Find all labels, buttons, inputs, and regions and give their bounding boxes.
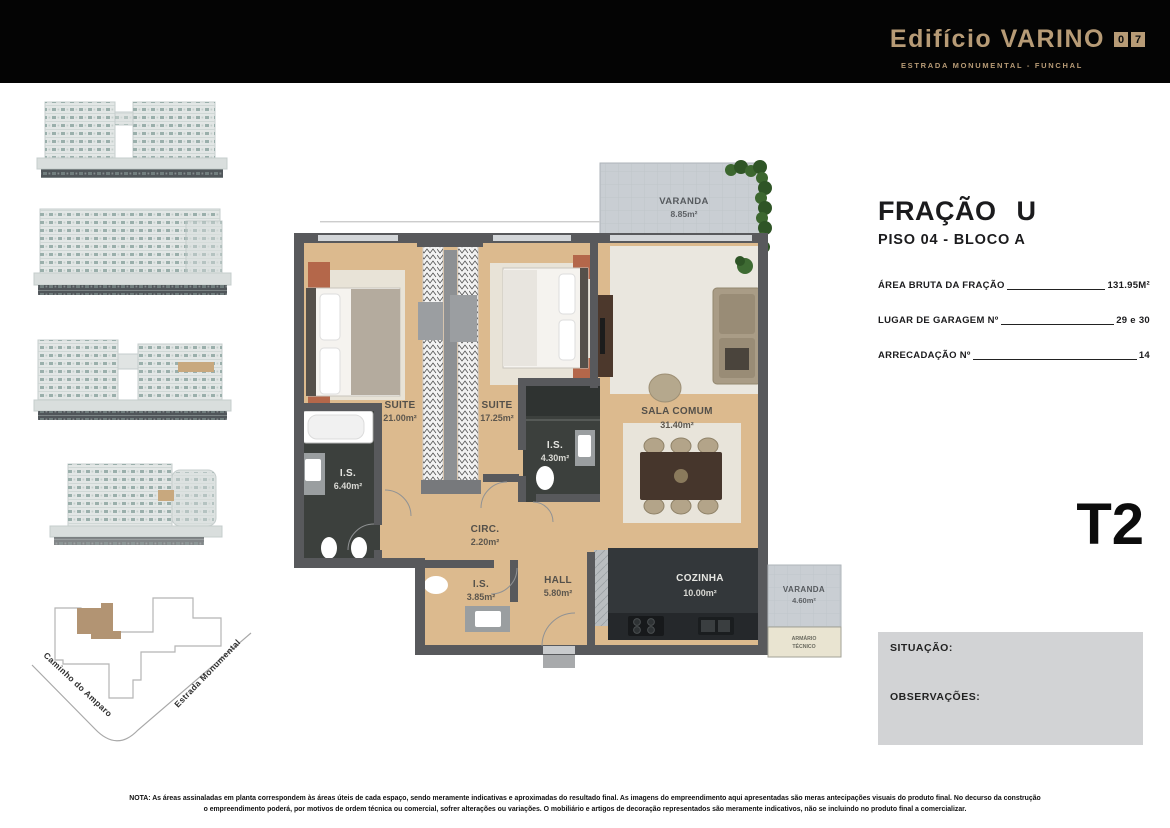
- brand-block: Edifício VARINO 0 7 ESTRADA MONUMENTAL -…: [867, 25, 1145, 70]
- room-area-kitchen: 10.00m²: [683, 588, 717, 598]
- vanity-sink: [301, 453, 325, 495]
- room-label-suite-2: SUITE: [482, 400, 513, 411]
- room-label-hall: HALL: [544, 575, 572, 586]
- technical-cabinet: ARMÁRIO TÉCNICO: [768, 627, 841, 657]
- vanity-sink-2: [575, 430, 595, 466]
- unit-number-box: 0: [1114, 32, 1128, 47]
- spec-label: ARRECADAÇÃO Nº: [878, 350, 971, 361]
- situation-observations-box: SITUAÇÃO: OBSERVAÇÕES:: [878, 632, 1143, 745]
- footer-note-line-2: o empreendimento poderá, por motivos de …: [80, 804, 1090, 815]
- brand-subtitle: ESTRADA MONUMENTAL - FUNCHAL: [867, 61, 1117, 70]
- room-label-living: SALA COMUM: [641, 406, 713, 417]
- road-line: [32, 633, 251, 741]
- kitchen-sink: [698, 617, 734, 635]
- dining-set: [640, 438, 722, 514]
- floor-above-outline: [320, 221, 600, 222]
- toilet-3: [424, 576, 448, 594]
- room-area-suite-2: 17.25m²: [480, 413, 514, 423]
- building-render-2: [30, 203, 235, 315]
- room-area-balcony-top: 8.85m²: [671, 209, 698, 219]
- observations-label: OBSERVAÇÕES:: [890, 691, 1131, 703]
- spec-row-storage: ARRECADAÇÃO Nº 14: [878, 350, 1150, 361]
- site-plan: Caminho do Amparo Estrada Monumental: [25, 586, 265, 764]
- kitchen-tall-cabinet-hatch: [594, 550, 608, 626]
- room-label-circ: CIRC.: [471, 524, 500, 535]
- shower-area: [523, 386, 600, 416]
- sofa: [713, 288, 761, 384]
- leader-line: [1001, 324, 1115, 325]
- room-label-is-1: I.S.: [340, 468, 356, 479]
- armchair: [649, 374, 681, 402]
- building-render-3: [30, 336, 235, 435]
- spec-label: LUGAR DE GARAGEM Nº: [878, 315, 999, 326]
- footer-note: NOTA: As áreas assinaladas em planta cor…: [80, 793, 1090, 816]
- unit-number-box: 7: [1131, 32, 1145, 47]
- footer-note-line-1: NOTA: As áreas assinaladas em planta cor…: [80, 793, 1090, 804]
- balcony-side: VARANDA 4.60m²: [768, 565, 841, 627]
- room-label-balcony-side: VARANDA: [783, 585, 825, 594]
- room-area-is-3: 3.85m²: [467, 592, 496, 602]
- room-label-is-2: I.S.: [547, 440, 563, 451]
- room-label-kitchen: COZINHA: [676, 573, 724, 584]
- building-render-4: [40, 452, 230, 570]
- room-area-balcony-side: 4.60m²: [792, 596, 816, 605]
- room-area-living: 31.40m²: [660, 420, 694, 430]
- unit-number-boxes: 0 7: [1114, 32, 1145, 47]
- room-area-is-1: 6.40m²: [334, 481, 363, 491]
- spec-rows: ÁREA BRUTA DA FRAÇÃO 131.95M² LUGAR DE G…: [878, 280, 1150, 361]
- brochure-page: Edifício VARINO 0 7 ESTRADA MONUMENTAL -…: [0, 0, 1170, 828]
- room-area-is-2: 4.30m²: [541, 453, 570, 463]
- room-label-balcony-top: VARANDA: [659, 196, 709, 207]
- room-area-hall: 5.80m²: [544, 588, 573, 598]
- spec-value: 29 e 30: [1116, 315, 1150, 326]
- room-area-circ: 2.20m²: [471, 537, 500, 547]
- fraction-title: FRAÇÃO U: [878, 196, 1150, 227]
- spec-label: ÁREA BRUTA DA FRAÇÃO: [878, 280, 1005, 291]
- brand-title: Edifício VARINO: [890, 25, 1105, 54]
- room-label-suite-1: SUITE: [385, 400, 416, 411]
- typology-label: T2: [878, 496, 1144, 554]
- unit-highlight-band: [158, 490, 174, 501]
- nightstand: [308, 262, 330, 288]
- header-bar: Edifício VARINO 0 7 ESTRADA MONUMENTAL -…: [0, 0, 1170, 83]
- building-render-1: [33, 98, 231, 182]
- toilet: [321, 537, 337, 559]
- bed-suite-2: [503, 255, 590, 382]
- vanity-sink-3: [465, 606, 510, 632]
- technical-cabinet-label-2: TÉCNICO: [792, 642, 815, 650]
- entrance-door-gap: [543, 646, 575, 654]
- wardrobe-closets: [418, 244, 481, 494]
- tv-unit: [598, 295, 613, 377]
- floor-block: PISO 04 - BLOCO A: [878, 232, 1150, 248]
- unit-highlight-band: [178, 362, 214, 372]
- street-label-left: Caminho do Amparo: [42, 650, 115, 719]
- leader-line: [1007, 289, 1106, 290]
- spec-row-garage: LUGAR DE GARAGEM Nº 29 e 30: [878, 315, 1150, 326]
- unit-location-highlight: [77, 603, 121, 639]
- spec-row-area: ÁREA BRUTA DA FRAÇÃO 131.95M²: [878, 280, 1150, 291]
- windows: [318, 235, 752, 241]
- technical-cabinet-label-1: ARMÁRIO: [792, 635, 817, 642]
- spec-value: 131.95M²: [1107, 280, 1150, 291]
- room-label-is-3: I.S.: [473, 579, 489, 590]
- toilet-2: [536, 466, 554, 490]
- bidet: [351, 537, 367, 559]
- bathtub: [303, 411, 373, 443]
- cooktop: [628, 616, 664, 636]
- leader-line: [973, 359, 1137, 360]
- spec-value: 14: [1139, 350, 1150, 361]
- street-label-right: Estrada Monumental: [172, 637, 242, 709]
- spec-panel: FRAÇÃO U PISO 04 - BLOCO A ÁREA BRUTA DA…: [878, 196, 1150, 385]
- situation-label: SITUAÇÃO:: [890, 642, 1131, 654]
- room-area-suite-1: 21.00m²: [383, 413, 417, 423]
- floor-plan: SUITE 21.00m² SUITE 17.25m² SALA COMUM 3…: [293, 158, 860, 670]
- entrance-threshold: [543, 655, 575, 668]
